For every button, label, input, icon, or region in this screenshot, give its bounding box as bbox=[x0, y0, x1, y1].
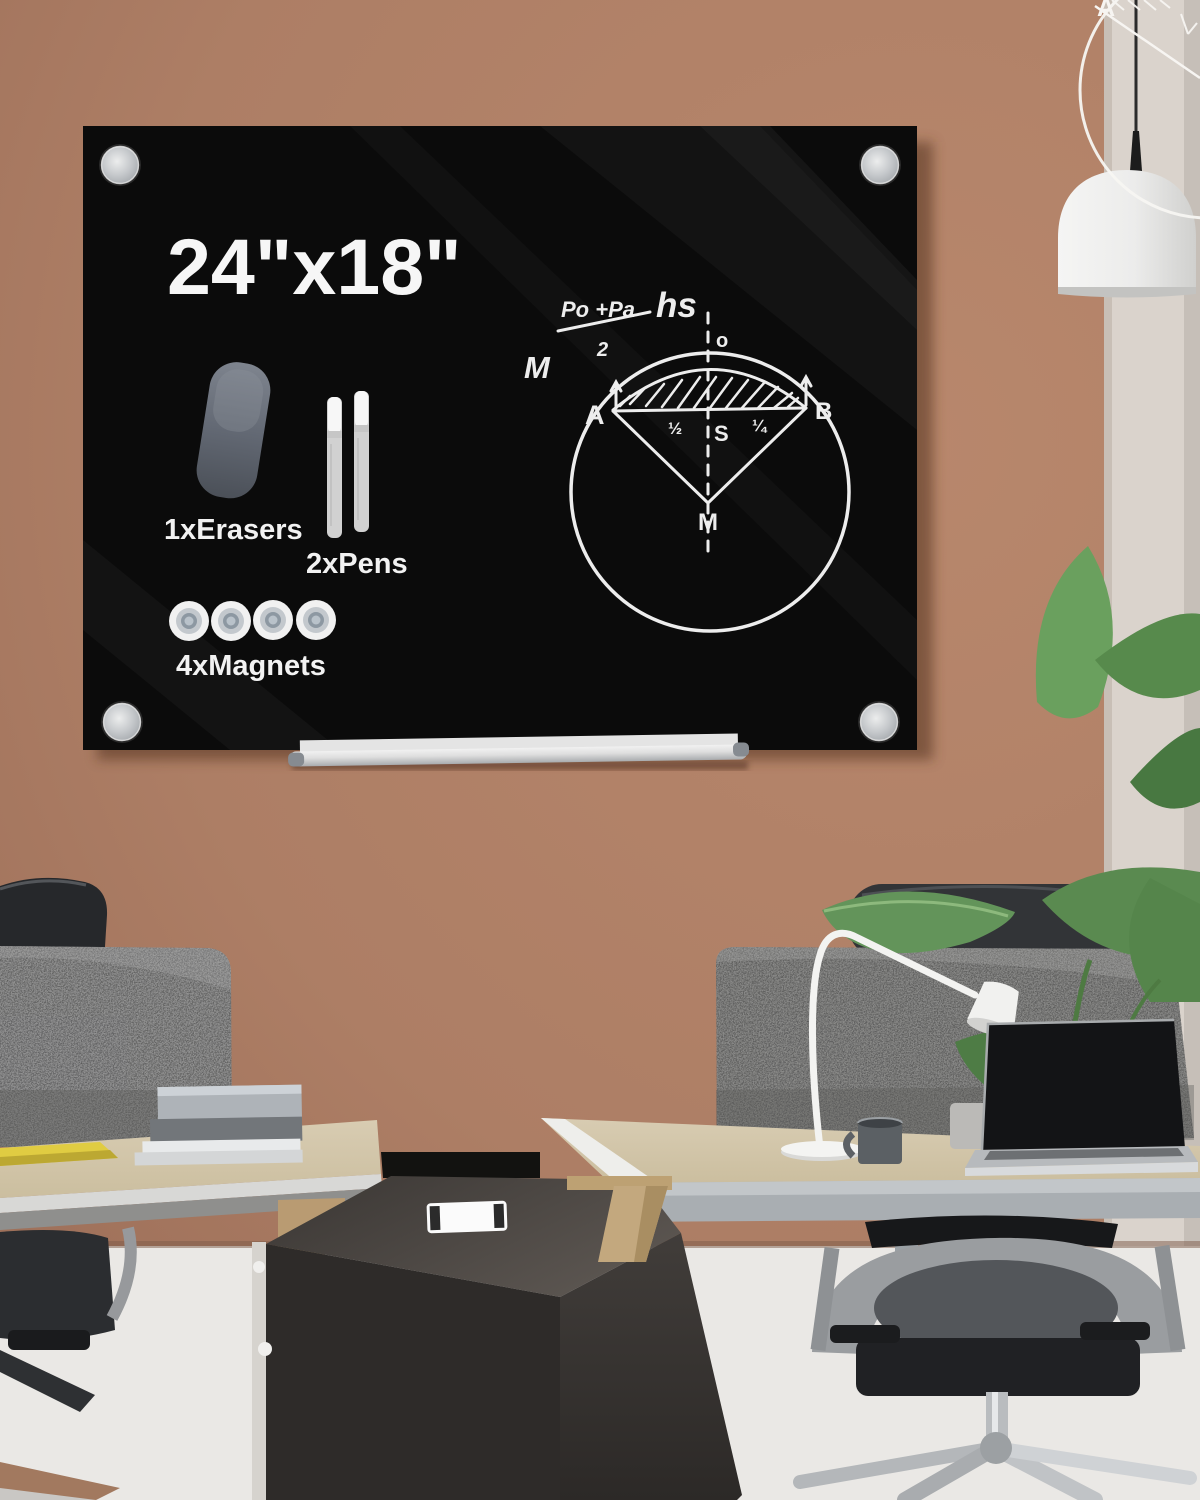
svg-text:¼: ¼ bbox=[752, 416, 768, 435]
svg-text:S: S bbox=[714, 421, 729, 446]
svg-text:1xErasers: 1xErasers bbox=[164, 514, 303, 546]
svg-text:24"x18": 24"x18" bbox=[167, 222, 462, 311]
svg-text:4xMagnets: 4xMagnets bbox=[176, 650, 326, 682]
svg-text:o: o bbox=[716, 330, 728, 352]
svg-text:2xPens: 2xPens bbox=[306, 548, 408, 580]
svg-text:M: M bbox=[524, 350, 551, 385]
svg-text:A: A bbox=[585, 400, 605, 430]
svg-text:B: B bbox=[815, 398, 832, 425]
svg-text:Po +Pa: Po +Pa bbox=[561, 297, 635, 322]
svg-text:½: ½ bbox=[668, 419, 682, 438]
svg-text:hs: hs bbox=[656, 286, 697, 325]
svg-text:M: M bbox=[698, 509, 718, 536]
svg-text:A: A bbox=[1097, 0, 1115, 22]
svg-text:2: 2 bbox=[596, 339, 608, 361]
